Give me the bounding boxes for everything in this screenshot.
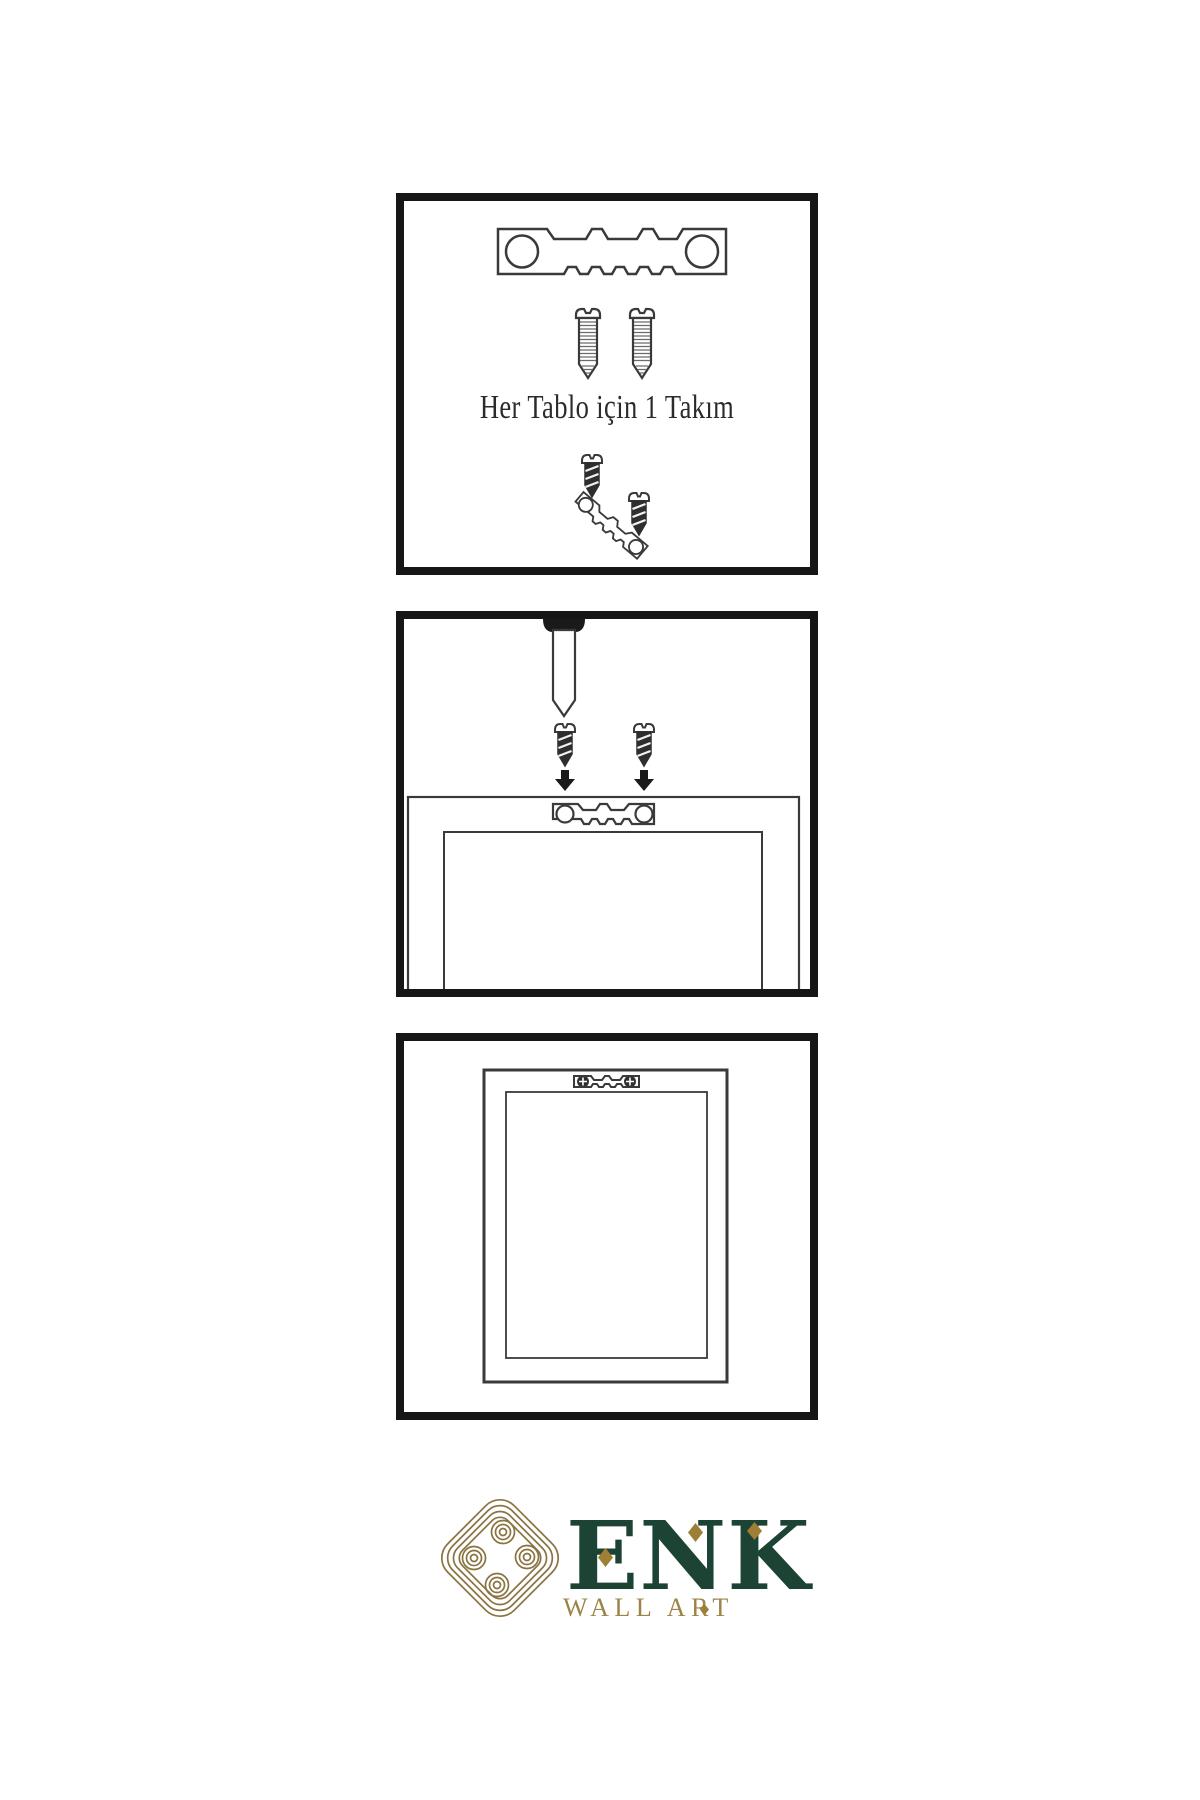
step-1-caption: Her Tablo için 1 Takım [449,389,766,427]
instruction-sheet: Her Tablo için 1 Takım [0,0,1200,1800]
sawtooth-hanger-illustration [498,229,726,274]
frame-back-illustration [408,797,799,989]
screw-and-angled-hanger-illustration [573,455,649,559]
mounting-screw-illustration [576,309,654,378]
installed-hanger-illustration [574,1076,639,1087]
phillips-screw-head-icon [578,1076,589,1087]
phillips-screw-head-icon [625,1076,636,1087]
step-3-illustration [404,1041,810,1412]
brand-subtitle: WALL ART [563,1595,734,1621]
hung-frame-illustration [484,1070,727,1382]
step-1-illustration [404,201,810,567]
step-2-illustration [404,619,810,989]
wall-nail-illustration [543,619,585,716]
step-2-panel [396,611,818,997]
knot-logo-icon [437,1492,566,1623]
step-3-panel [396,1033,818,1420]
screw-with-arrow-illustration [555,724,654,791]
step-1-panel: Her Tablo için 1 Takım [396,193,818,575]
